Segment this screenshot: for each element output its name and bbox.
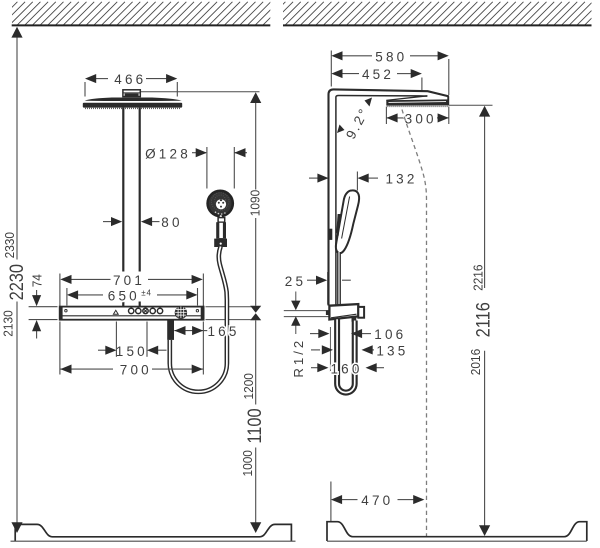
svg-text:580: 580 — [375, 49, 407, 64]
svg-text:452: 452 — [362, 67, 394, 82]
svg-text:2216: 2216 — [471, 264, 486, 290]
svg-text:R1/2: R1/2 — [291, 338, 306, 378]
svg-text:701: 701 — [113, 273, 145, 288]
svg-text:1100: 1100 — [244, 408, 266, 443]
svg-text:135: 135 — [376, 344, 408, 359]
svg-text:2116: 2116 — [472, 302, 494, 337]
svg-text:2230: 2230 — [6, 264, 28, 300]
svg-text:650: 650 — [108, 289, 140, 304]
svg-text:470: 470 — [361, 493, 393, 508]
svg-text:80: 80 — [161, 215, 182, 230]
svg-text:165: 165 — [207, 324, 239, 339]
svg-text:150: 150 — [116, 344, 148, 359]
svg-text:74: 74 — [30, 274, 45, 287]
svg-text:1200: 1200 — [241, 373, 256, 399]
svg-text:2016: 2016 — [468, 349, 483, 375]
svg-text:2330: 2330 — [2, 232, 17, 258]
svg-text:±4: ±4 — [141, 288, 151, 297]
svg-text:2130: 2130 — [1, 310, 16, 336]
svg-text:700: 700 — [120, 363, 152, 378]
svg-text:1090: 1090 — [248, 190, 263, 216]
svg-text:160: 160 — [330, 361, 362, 376]
svg-text:1000: 1000 — [240, 450, 255, 476]
svg-text:25: 25 — [285, 274, 306, 289]
svg-text:9.2°: 9.2° — [343, 105, 372, 142]
svg-text:Ø128: Ø128 — [145, 146, 191, 161]
svg-text:132: 132 — [385, 172, 417, 187]
svg-text:466: 466 — [114, 72, 146, 87]
svg-text:300: 300 — [405, 112, 437, 127]
svg-text:106: 106 — [374, 327, 406, 342]
